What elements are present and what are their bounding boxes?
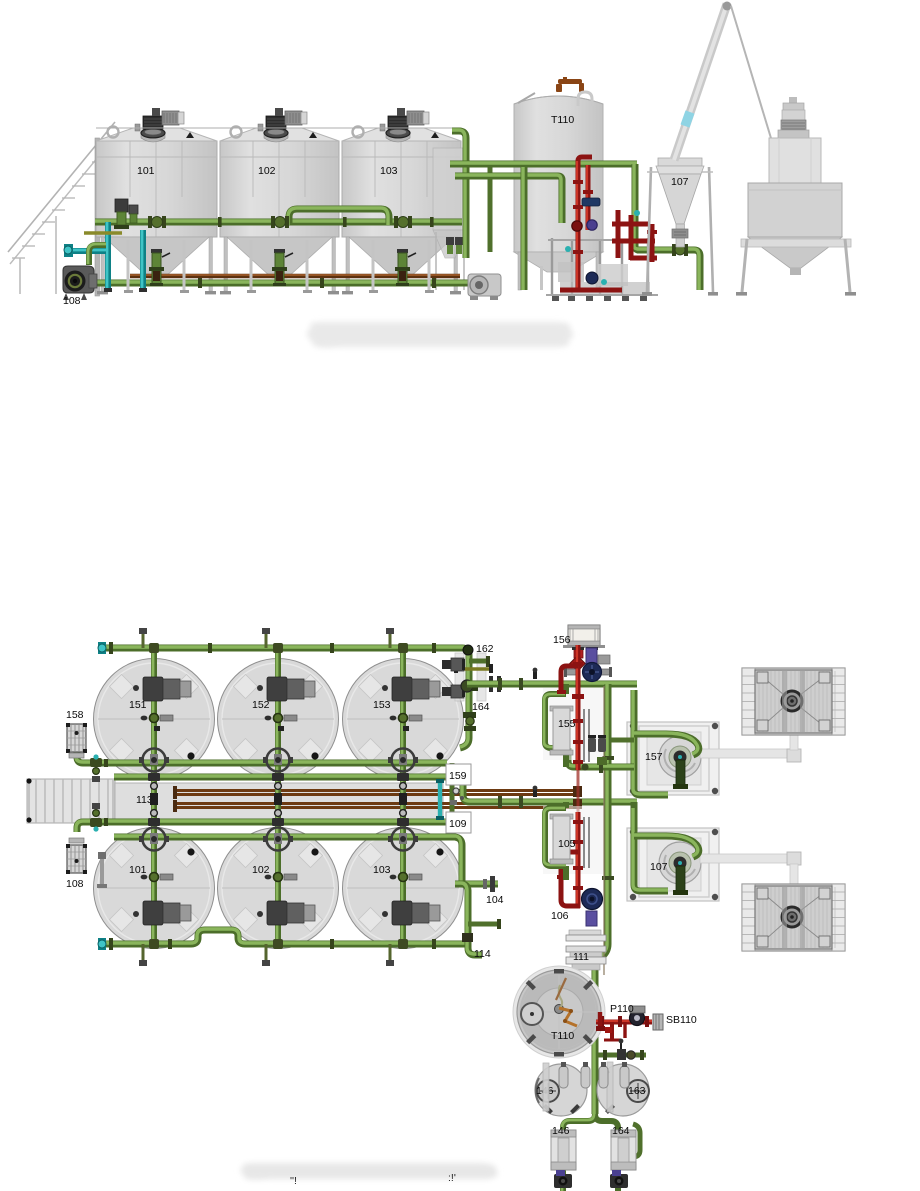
- svg-text:156: 156: [553, 634, 571, 646]
- svg-text:164: 164: [612, 1125, 630, 1137]
- svg-text:146: 146: [552, 1125, 570, 1137]
- svg-text:152: 152: [252, 699, 270, 711]
- svg-text:103: 103: [373, 864, 391, 876]
- svg-text:101: 101: [137, 165, 155, 177]
- svg-text::!': :!': [448, 1172, 456, 1184]
- svg-text:108: 108: [66, 878, 84, 890]
- svg-text:163: 163: [628, 1085, 646, 1097]
- svg-text:107: 107: [671, 176, 689, 188]
- svg-text:103: 103: [380, 165, 398, 177]
- svg-text:158: 158: [66, 709, 84, 721]
- svg-text:108: 108: [63, 295, 81, 307]
- svg-text:101: 101: [129, 864, 147, 876]
- svg-text:153: 153: [373, 699, 391, 711]
- svg-text:111: 111: [573, 951, 589, 963]
- svg-text:162: 162: [476, 643, 494, 655]
- svg-text:105: 105: [558, 838, 576, 850]
- svg-text:102: 102: [252, 864, 270, 876]
- svg-text:SB110: SB110: [666, 1014, 697, 1026]
- svg-text:102: 102: [258, 165, 276, 177]
- svg-text:159: 159: [449, 770, 467, 782]
- svg-text:164: 164: [472, 701, 490, 713]
- svg-text:107: 107: [650, 861, 668, 873]
- svg-text:109: 109: [449, 818, 467, 830]
- svg-text:''!: ''!: [290, 1175, 297, 1187]
- svg-text:104: 104: [486, 894, 504, 906]
- svg-text:P110: P110: [610, 1003, 634, 1015]
- svg-text:T110: T110: [551, 114, 574, 126]
- svg-text:114: 114: [474, 948, 491, 960]
- svg-text:106: 106: [551, 910, 569, 922]
- svg-text:157: 157: [645, 751, 663, 763]
- svg-text:151: 151: [129, 699, 147, 711]
- svg-text:T110: T110: [551, 1030, 574, 1042]
